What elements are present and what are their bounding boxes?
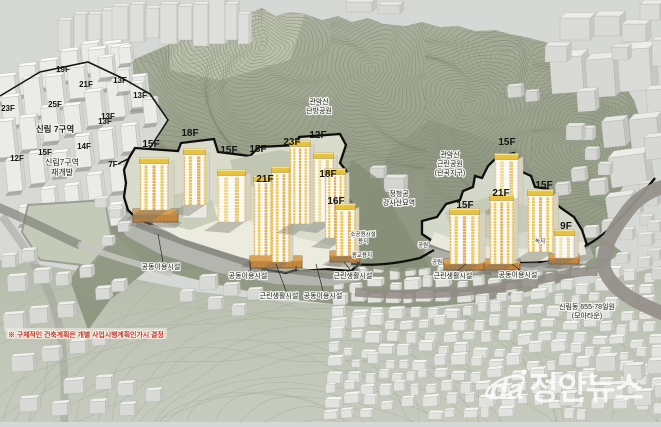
svg-text:(난곡지구): (난곡지구) — [435, 168, 465, 177]
svg-text:재개발: 재개발 — [51, 167, 74, 177]
svg-text:23F: 23F — [283, 137, 300, 148]
svg-text:18F: 18F — [181, 128, 198, 139]
svg-text:13F: 13F — [98, 117, 112, 126]
svg-text:신림동 655-78일원: 신림동 655-78일원 — [559, 302, 615, 311]
svg-text:강사산묘역: 강사산묘역 — [383, 198, 415, 207]
svg-text:관악산: 관악산 — [440, 150, 460, 159]
svg-text:21F: 21F — [492, 188, 509, 199]
svg-text:근린생활시설: 근린생활시설 — [334, 271, 373, 280]
svg-text:근린공원: 근린공원 — [437, 159, 463, 168]
svg-text:난방공원: 난방공원 — [306, 106, 332, 115]
svg-text:25F: 25F — [48, 100, 62, 109]
svg-text:근린생활시설: 근린생활시설 — [260, 291, 299, 300]
svg-text:15F: 15F — [456, 200, 473, 211]
svg-text:신림7구역: 신림7구역 — [45, 157, 79, 167]
svg-text:7F: 7F — [108, 160, 117, 169]
svg-text:15F: 15F — [498, 137, 515, 148]
svg-text:녹지: 녹지 — [535, 237, 545, 245]
svg-text:종교용지: 종교용지 — [352, 251, 372, 259]
svg-text:용지: 용지 — [358, 237, 368, 245]
svg-text:21F: 21F — [256, 174, 273, 185]
svg-text:15F: 15F — [38, 148, 52, 157]
svg-text:19F: 19F — [56, 65, 70, 74]
svg-text:da: da — [490, 374, 524, 406]
svg-text:13F: 13F — [113, 76, 127, 85]
svg-text:공원: 공원 — [418, 241, 428, 249]
svg-text:12F: 12F — [10, 154, 24, 163]
svg-text:23F: 23F — [1, 104, 15, 113]
svg-text:16F: 16F — [327, 196, 344, 207]
svg-text:18F: 18F — [319, 169, 336, 180]
svg-text:정안뉴스: 정안뉴스 — [529, 370, 643, 406]
svg-text:9F: 9F — [560, 221, 572, 232]
svg-text:공원: 공원 — [432, 258, 442, 266]
svg-text:15F: 15F — [142, 139, 159, 150]
svg-text:21F: 21F — [79, 80, 93, 89]
svg-text:15F: 15F — [220, 145, 237, 156]
svg-text:(모아타운): (모아타운) — [572, 311, 602, 320]
svg-text:공동이용시설: 공동이용시설 — [229, 271, 268, 280]
svg-text:소공원시설: 소공원시설 — [350, 230, 375, 238]
svg-text:12F: 12F — [309, 130, 326, 141]
svg-text:공동이용시설: 공동이용시설 — [499, 270, 538, 279]
svg-text:14F: 14F — [77, 142, 91, 151]
svg-text:관악산: 관악산 — [309, 97, 329, 106]
svg-text:신림 7구역: 신림 7구역 — [36, 124, 74, 134]
svg-text:정청공: 정청공 — [389, 189, 409, 198]
svg-text:※ 구체적인 건축계획은 개별 사업시행계획인가시 결정: ※ 구체적인 건축계획은 개별 사업시행계획인가시 결정 — [8, 330, 164, 339]
svg-text:공동이용시설: 공동이용시설 — [304, 291, 343, 300]
svg-text:근린생활시설: 근린생활시설 — [434, 271, 473, 280]
svg-text:13F: 13F — [133, 91, 147, 100]
svg-text:공동이용시설: 공동이용시설 — [142, 262, 181, 271]
svg-text:15F: 15F — [249, 144, 266, 155]
svg-text:15F: 15F — [535, 180, 552, 191]
